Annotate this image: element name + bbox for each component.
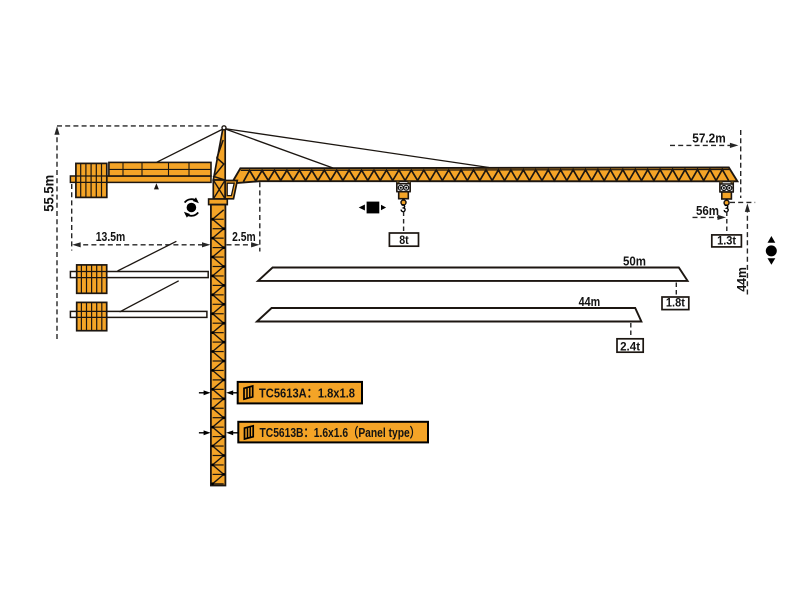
svg-text:44m: 44m: [579, 294, 601, 309]
svg-text:2.4t: 2.4t: [620, 342, 640, 354]
svg-text:TC5613B：1.6x1.6（Panel type）: TC5613B：1.6x1.6（Panel type）: [260, 425, 421, 440]
svg-text:TC5613A：1.8x1.8: TC5613A：1.8x1.8: [259, 385, 355, 400]
svg-text:1.3t: 1.3t: [717, 236, 736, 248]
svg-text:2.5m: 2.5m: [232, 229, 256, 244]
svg-text:1.8t: 1.8t: [666, 297, 685, 309]
svg-text:8t: 8t: [399, 235, 409, 247]
svg-text:50m: 50m: [623, 253, 646, 268]
svg-text:55.5m: 55.5m: [40, 175, 56, 212]
svg-text:56m: 56m: [696, 203, 719, 218]
svg-text:44m: 44m: [734, 267, 749, 292]
svg-text:13.5m: 13.5m: [96, 229, 126, 244]
svg-text:57.2m: 57.2m: [692, 131, 726, 146]
